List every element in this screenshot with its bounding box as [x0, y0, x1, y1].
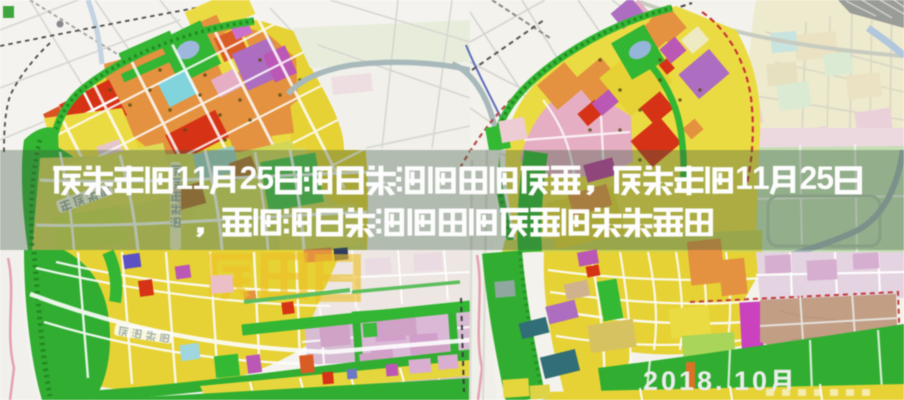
svg-text:0: 0: [752, 366, 767, 396]
svg-text:1: 1: [192, 160, 210, 196]
svg-text:5: 5: [816, 160, 834, 196]
svg-text:1: 1: [735, 160, 753, 196]
svg-text:2: 2: [800, 160, 818, 196]
svg-text:5: 5: [256, 160, 274, 196]
svg-text:1: 1: [175, 160, 193, 196]
svg-text:2: 2: [643, 366, 658, 396]
svg-text:1: 1: [734, 366, 749, 396]
svg-text:1: 1: [679, 366, 694, 396]
svg-text:.: .: [715, 366, 723, 396]
svg-text:1: 1: [752, 160, 770, 196]
svg-text:8: 8: [697, 366, 712, 396]
svg-text:0: 0: [661, 366, 676, 396]
svg-text:2: 2: [240, 160, 258, 196]
